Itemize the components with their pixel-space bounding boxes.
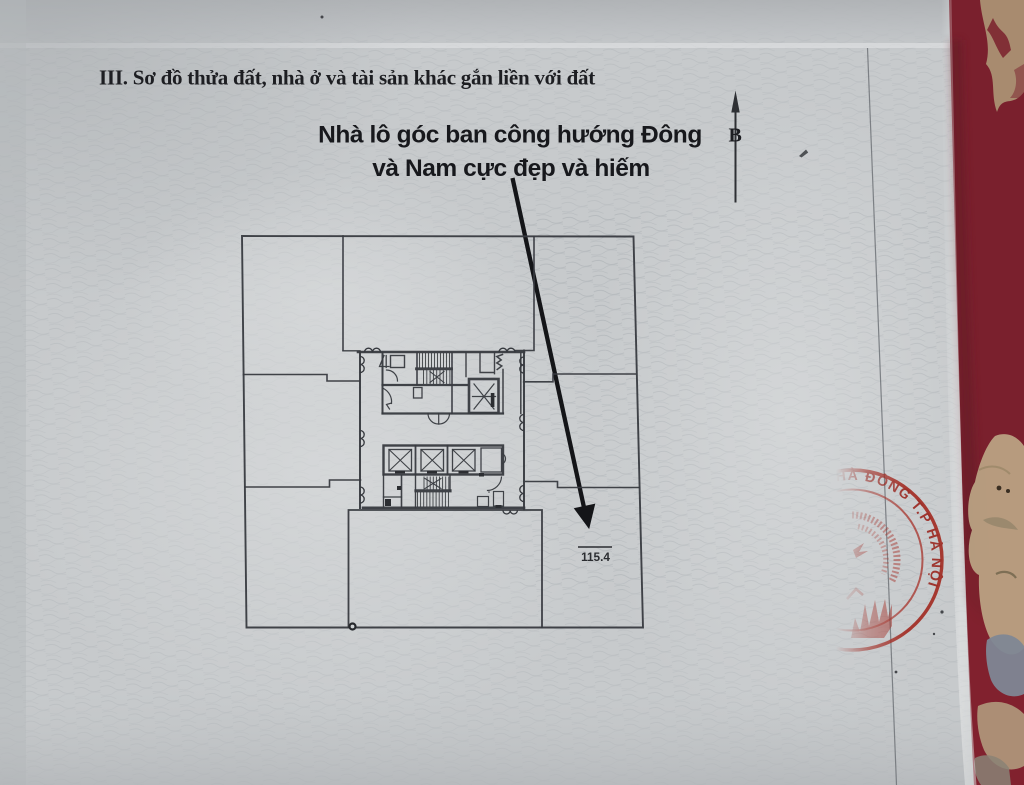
svg-text:III. Sơ đồ thửa đất, nhà ở và: III. Sơ đồ thửa đất, nhà ở và tài sản kh… (99, 66, 595, 90)
svg-text:Nhà lô góc ban công hướng Đông: Nhà lô góc ban công hướng Đông (318, 122, 702, 149)
svg-text:và Nam cực đẹp và hiếm: và Nam cực đẹp và hiếm (372, 155, 649, 182)
svg-text:115.4: 115.4 (581, 550, 610, 564)
svg-text:B: B (729, 125, 742, 147)
